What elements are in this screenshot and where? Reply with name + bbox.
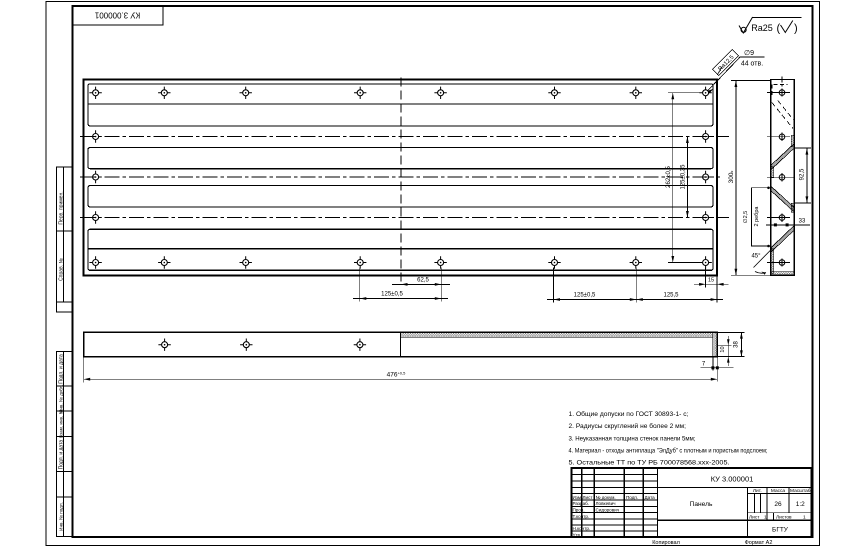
svg-text:Изм.: Изм. <box>573 495 583 500</box>
svg-text:Дата: Дата <box>645 495 656 500</box>
svg-text:26: 26 <box>774 501 782 508</box>
svg-text:Масштаб: Масштаб <box>790 488 811 494</box>
svg-text:Инв. № дубл.: Инв. № дубл. <box>58 384 63 412</box>
svg-text:Инв. № подл.: Инв. № подл. <box>58 502 63 531</box>
svg-text:33: 33 <box>799 219 806 225</box>
svg-text:3. Неуказанная толщина стенок: 3. Неуказанная толщина стенок панели 5мм… <box>569 435 696 442</box>
svg-text:5. Остальные ТТ по ТУ РБ 70007: 5. Остальные ТТ по ТУ РБ 700078568.ххх-2… <box>569 460 730 467</box>
svg-text:45°: 45° <box>751 254 761 260</box>
svg-text:10: 10 <box>720 346 726 352</box>
svg-text:1. Общие допуски по ГОСТ 30893: 1. Общие допуски по ГОСТ 30893-1- с; <box>569 411 689 418</box>
svg-text:№ докум.: № докум. <box>596 495 616 500</box>
svg-text:∅2,5: ∅2,5 <box>742 211 749 223</box>
svg-text:Подп.: Подп. <box>626 495 638 500</box>
svg-text:1: 1 <box>803 515 806 521</box>
svg-text:125±0,35: 125±0,35 <box>680 164 686 190</box>
svg-text:125±0,5: 125±0,5 <box>574 292 596 298</box>
svg-text:(: ( <box>777 23 781 35</box>
svg-text:Ra25: Ra25 <box>751 23 773 33</box>
svg-text:2 ребра: 2 ребра <box>754 206 760 227</box>
svg-text:Панель: Панель <box>690 501 713 508</box>
svg-text:15: 15 <box>708 278 714 284</box>
svg-text:Справ. №: Справ. № <box>58 258 64 281</box>
svg-text:КУ 3.000001: КУ 3.000001 <box>711 475 754 484</box>
svg-text:Лист: Лист <box>583 495 594 500</box>
svg-text:): ) <box>794 23 798 35</box>
svg-text:КУ 3.000001: КУ 3.000001 <box>94 10 140 19</box>
svg-text:262±0,5: 262±0,5 <box>666 166 672 188</box>
svg-text:Копировал: Копировал <box>652 540 680 546</box>
svg-text:Подп. и дата: Подп. и дата <box>58 440 64 470</box>
svg-text:Масса: Масса <box>771 488 786 494</box>
svg-text:125±0,5: 125±0,5 <box>381 291 403 297</box>
svg-text:Пров.: Пров. <box>573 508 585 513</box>
svg-text:Лист: Лист <box>749 515 760 521</box>
svg-text:1:2: 1:2 <box>796 501 805 508</box>
svg-text:БГТУ: БГТУ <box>772 527 789 534</box>
svg-text:Т.контр.: Т.контр. <box>573 514 590 519</box>
svg-text:Ловкевич: Ловкевич <box>596 501 617 506</box>
svg-text:44 отв.: 44 отв. <box>741 61 763 68</box>
svg-text:92,5: 92,5 <box>800 168 806 180</box>
svg-text:Взам. инв. №: Взам. инв. № <box>58 410 63 439</box>
svg-text:38: 38 <box>733 341 739 348</box>
svg-text:Лит.: Лит. <box>753 488 762 494</box>
svg-text:Подп. и дата: Подп. и дата <box>58 354 64 384</box>
svg-text:Формат А2: Формат А2 <box>745 540 773 546</box>
svg-text:Н.контр.: Н.контр. <box>573 526 591 531</box>
svg-text:Утв.: Утв. <box>573 532 582 537</box>
svg-text:Разраб.: Разраб. <box>573 501 590 506</box>
svg-text:∅9: ∅9 <box>744 50 754 57</box>
svg-text:300к: 300к <box>728 170 735 183</box>
svg-text:Сидорович: Сидорович <box>596 508 620 513</box>
svg-text:62,5: 62,5 <box>417 278 429 284</box>
svg-text:125,5: 125,5 <box>663 292 679 298</box>
svg-text:Листов: Листов <box>776 515 792 521</box>
svg-text:1: 1 <box>764 515 767 521</box>
svg-text:4. Материал - отходы антиплаща: 4. Материал - отходы антиплаща "ЭлДуб" с… <box>569 448 768 455</box>
svg-text:Перв. примен.: Перв. примен. <box>58 191 64 224</box>
svg-text:2. Радиусы скруглений не более: 2. Радиусы скруглений не более 2 мм; <box>569 423 687 430</box>
